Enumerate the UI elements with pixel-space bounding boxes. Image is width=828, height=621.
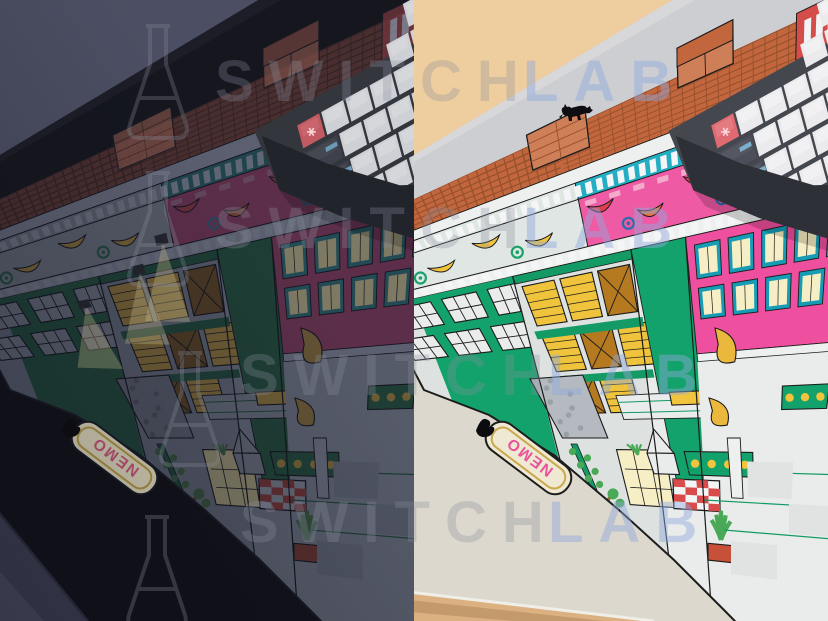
svg-text:LAB: LAB <box>548 343 712 408</box>
svg-text:LAB: LAB <box>523 196 687 261</box>
svg-text:LAB: LAB <box>523 49 687 114</box>
svg-text:LAB: LAB <box>548 490 712 555</box>
svg-text:SWITCH: SWITCH <box>215 49 534 114</box>
svg-text:SWITCH: SWITCH <box>240 343 559 408</box>
svg-text:SWITCH: SWITCH <box>215 196 534 261</box>
svg-text:SWITCH: SWITCH <box>240 490 559 555</box>
